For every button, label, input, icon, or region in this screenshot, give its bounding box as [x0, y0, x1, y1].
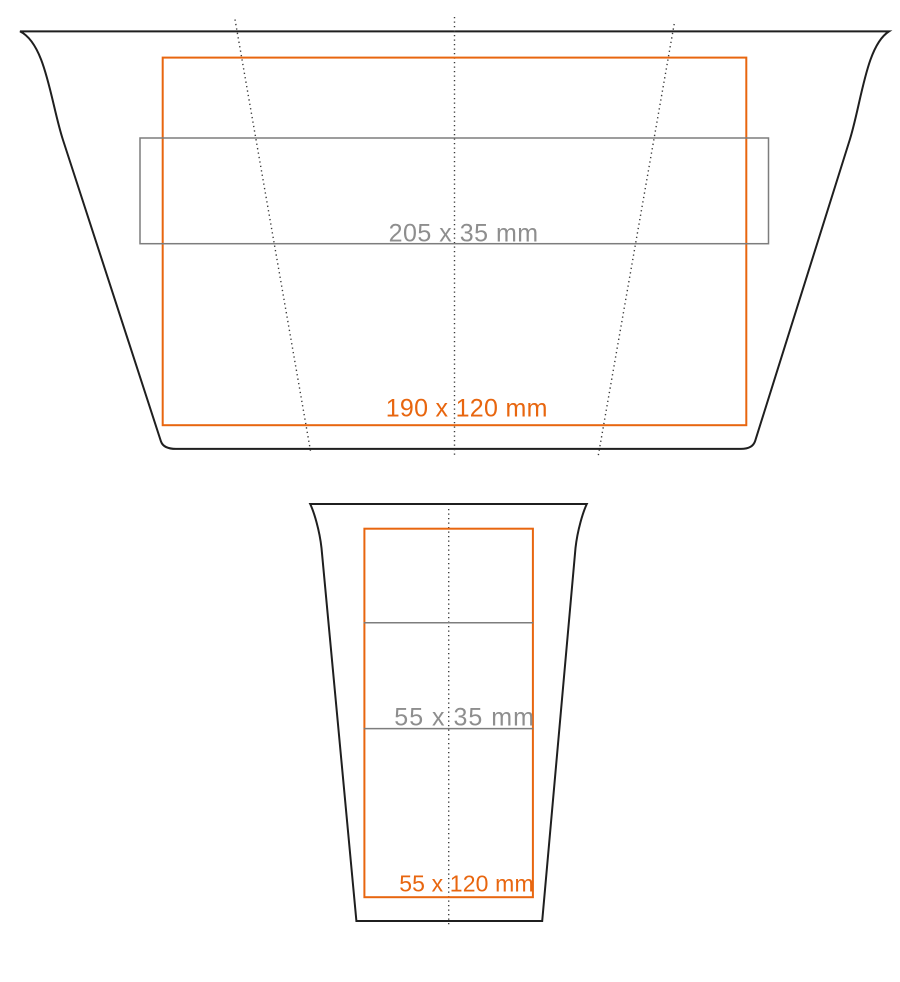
svg-text:55 x 35 mm: 55 x 35 mm — [394, 704, 535, 732]
svg-text:190 x 120 mm: 190 x 120 mm — [386, 394, 548, 422]
svg-text:205 x 35 mm: 205 x 35 mm — [389, 220, 539, 248]
svg-text:55 x 120 mm: 55 x 120 mm — [399, 870, 534, 896]
